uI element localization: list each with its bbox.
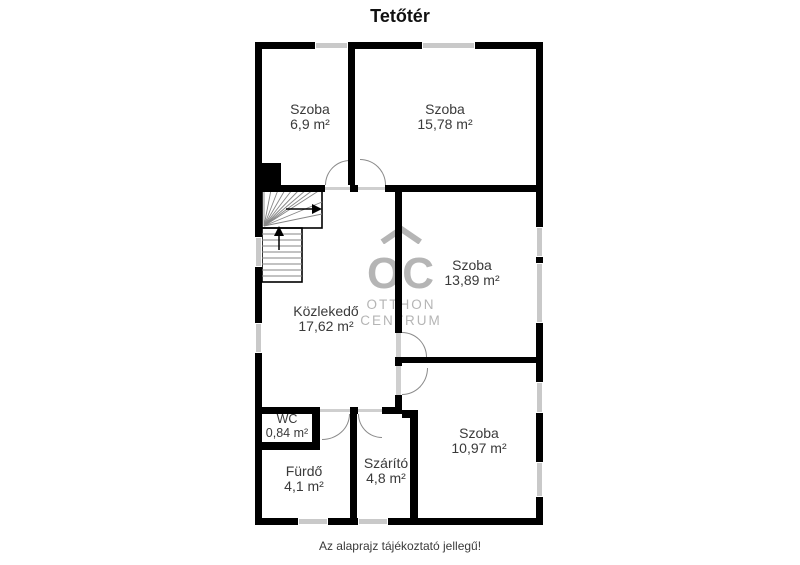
window (298, 518, 328, 525)
wall-bath-dryer-divider (350, 414, 357, 518)
wall-dryer-room-divider (410, 418, 418, 518)
room-area: 13,89 m² (444, 273, 499, 288)
door-arc (358, 414, 382, 438)
wall-right-rooms-divider (402, 357, 536, 363)
wall-hall-divider (395, 395, 402, 414)
window (255, 323, 262, 353)
room-label-szoba-topleft: Szoba 6,9 m² (290, 102, 330, 132)
wall-hall-divider (395, 357, 402, 366)
wall-outer-left (255, 42, 262, 525)
floor-plan-page: Tetőtér OC OTTHON CENTRUM (0, 0, 800, 565)
window (536, 382, 543, 413)
wall-mid-horizontal (385, 185, 536, 192)
door-threshold (325, 187, 350, 190)
wall-hall-divider (395, 192, 402, 333)
wall-dryer-room-stub (402, 410, 418, 418)
room-area: 4,1 m² (284, 479, 324, 494)
room-area: 15,78 m² (417, 117, 472, 132)
room-name: Fürdő (284, 464, 324, 479)
window (536, 462, 543, 497)
room-name: Szoba (417, 102, 472, 117)
room-name: Szoba (444, 258, 499, 273)
staircase (258, 188, 324, 286)
window (422, 42, 475, 49)
room-label-wc: WC 0,84 m² (266, 412, 308, 440)
door-threshold (358, 409, 382, 412)
window (358, 518, 388, 525)
room-name: Szoba (290, 102, 330, 117)
page-title: Tetőtér (0, 6, 800, 27)
door-threshold (358, 187, 385, 190)
door-arc (402, 332, 427, 357)
door-arc (360, 159, 386, 185)
disclaimer-text: Az alaprajz tájékoztató jellegű! (0, 539, 800, 553)
wall-bath-top (350, 407, 358, 414)
room-area: 17,62 m² (293, 319, 358, 334)
wall-bath-top (382, 407, 395, 414)
room-label-szoba-bottomright: Szoba 10,97 m² (451, 426, 506, 456)
room-area: 6,9 m² (290, 117, 330, 132)
room-name: WC (266, 412, 308, 426)
wall-outer-top (255, 42, 543, 49)
window (255, 237, 262, 267)
door-threshold (396, 333, 401, 357)
room-label-kozlekedo: Közlekedő 17,62 m² (293, 304, 358, 334)
door-arc (402, 368, 428, 395)
room-name: Szárító (364, 456, 408, 471)
window (536, 227, 543, 257)
chimney-block (258, 163, 281, 190)
room-name: Szoba (451, 426, 506, 441)
wall-wc-bottom (262, 442, 320, 450)
room-area: 10,97 m² (451, 441, 506, 456)
wall-mid-horizontal (350, 185, 358, 192)
room-label-furdo: Fürdő 4,1 m² (284, 464, 324, 494)
room-label-szoba-midright: Szoba 13,89 m² (444, 258, 499, 288)
door-threshold (396, 366, 401, 395)
window (536, 263, 543, 323)
room-label-szoba-topright: Szoba 15,78 m² (417, 102, 472, 132)
door-threshold (320, 409, 350, 412)
window (315, 42, 348, 49)
floor-plan: OC OTTHON CENTRUM (255, 42, 543, 525)
room-area: 0,84 m² (266, 426, 308, 440)
room-label-szarito: Szárító 4,8 m² (364, 456, 408, 486)
door-arc (322, 414, 350, 440)
room-area: 4,8 m² (364, 471, 408, 486)
wall-top-rooms-divider (348, 49, 355, 185)
room-name: Közlekedő (293, 304, 358, 319)
door-arc (325, 160, 350, 185)
